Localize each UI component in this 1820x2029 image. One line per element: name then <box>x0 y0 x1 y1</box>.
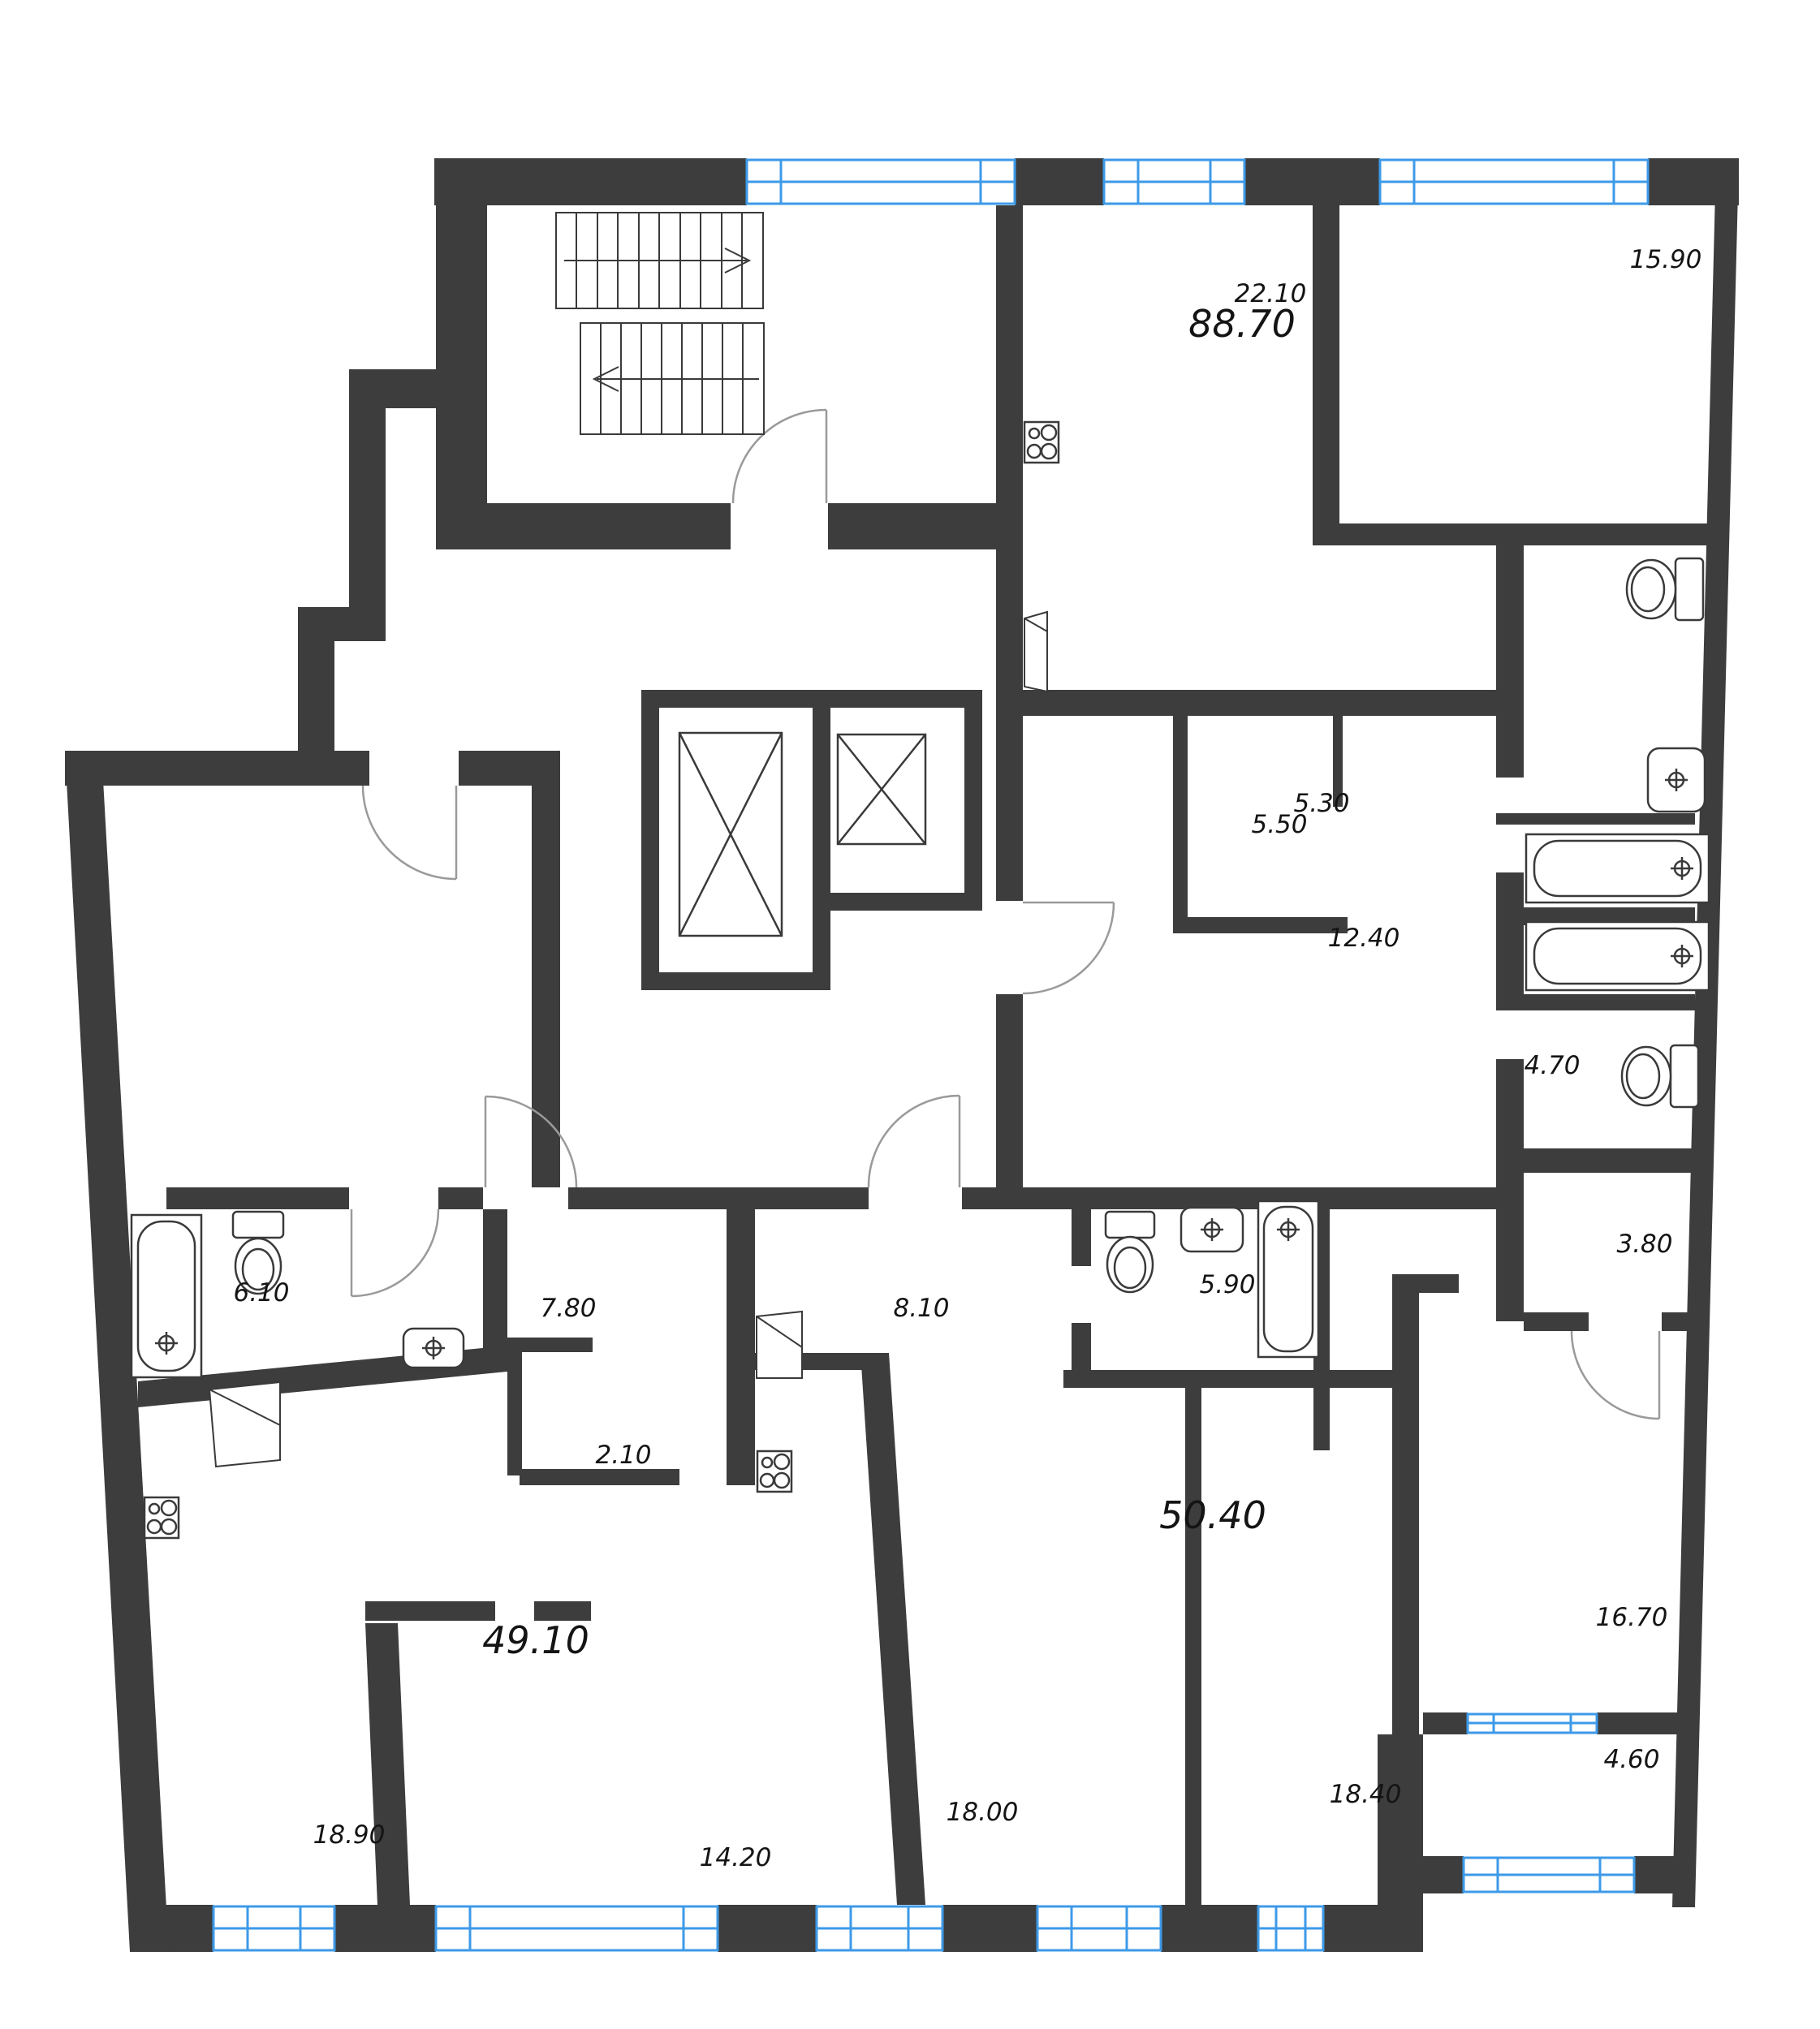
area-label-14-20: 14.20 <box>700 1843 772 1872</box>
window-icon <box>436 1906 718 1950</box>
window-icon <box>1104 160 1244 204</box>
area-label-6-10: 6.10 <box>233 1278 289 1307</box>
stove-icon <box>757 1451 791 1492</box>
stove-icon <box>144 1497 179 1538</box>
window-icon <box>1037 1906 1161 1950</box>
wardrobe-icon <box>209 1382 280 1467</box>
apartment-total-49-10: 49.10 <box>482 1618 589 1662</box>
area-label-7-80: 7.80 <box>540 1294 596 1323</box>
stairs-icon <box>556 213 764 434</box>
walls <box>65 158 1739 1952</box>
window-icon <box>213 1906 334 1950</box>
window-icon <box>1468 1714 1597 1733</box>
door-arc-icon <box>485 1096 576 1187</box>
elevator-icon <box>679 733 782 936</box>
area-label-3-80: 3.80 <box>1616 1230 1672 1259</box>
wardrobe-icon <box>1024 612 1047 691</box>
apartment-total-88-70: 88.70 <box>1188 302 1296 346</box>
area-label-4-60: 4.60 <box>1603 1745 1659 1774</box>
area-label-5-30: 5.30 <box>1293 789 1349 818</box>
sink-icon <box>1181 1208 1243 1251</box>
sink-icon <box>403 1329 464 1368</box>
windows <box>213 160 1648 1950</box>
elevator-icon <box>838 734 925 844</box>
floor-plan: 22.10 88.70 15.90 5.50 12.40 5.30 4.70 3… <box>0 0 1820 2029</box>
window-icon <box>1464 1858 1634 1892</box>
bathtub-icon <box>1526 922 1709 990</box>
area-label-18-00: 18.00 <box>947 1798 1019 1827</box>
area-label-2-10: 2.10 <box>595 1441 651 1470</box>
window-icon <box>1258 1906 1323 1950</box>
stove-icon <box>1024 422 1059 463</box>
apartment-total-50-40: 50.40 <box>1159 1493 1266 1537</box>
toilet-icon <box>1622 1045 1698 1107</box>
area-label-4-70: 4.70 <box>1524 1051 1580 1080</box>
area-label-15-90: 15.90 <box>1630 245 1702 274</box>
door-arc-icon <box>363 786 456 879</box>
area-label-8-10: 8.10 <box>893 1294 949 1323</box>
bathtub-icon <box>132 1215 201 1377</box>
door-arc-icon <box>1023 902 1114 993</box>
door-arc-icon <box>1572 1331 1659 1419</box>
area-label-18-40: 18.40 <box>1330 1780 1402 1809</box>
window-icon <box>817 1906 942 1950</box>
window-icon <box>1380 160 1648 204</box>
toilet-icon <box>1106 1212 1154 1292</box>
area-label-16-70: 16.70 <box>1596 1603 1668 1632</box>
bathtub-icon <box>1258 1201 1318 1357</box>
area-label-5-90: 5.90 <box>1199 1270 1255 1299</box>
area-label-12-40: 12.40 <box>1328 924 1400 953</box>
sink-icon <box>1648 748 1705 812</box>
toilet-icon <box>1627 558 1703 620</box>
door-arc-icon <box>351 1209 438 1296</box>
bathtub-icon <box>1526 834 1709 902</box>
window-icon <box>747 160 1015 204</box>
wardrobe-icon <box>757 1312 802 1378</box>
area-label-18-90: 18.90 <box>313 1820 386 1850</box>
door-arc-icon <box>869 1096 960 1187</box>
